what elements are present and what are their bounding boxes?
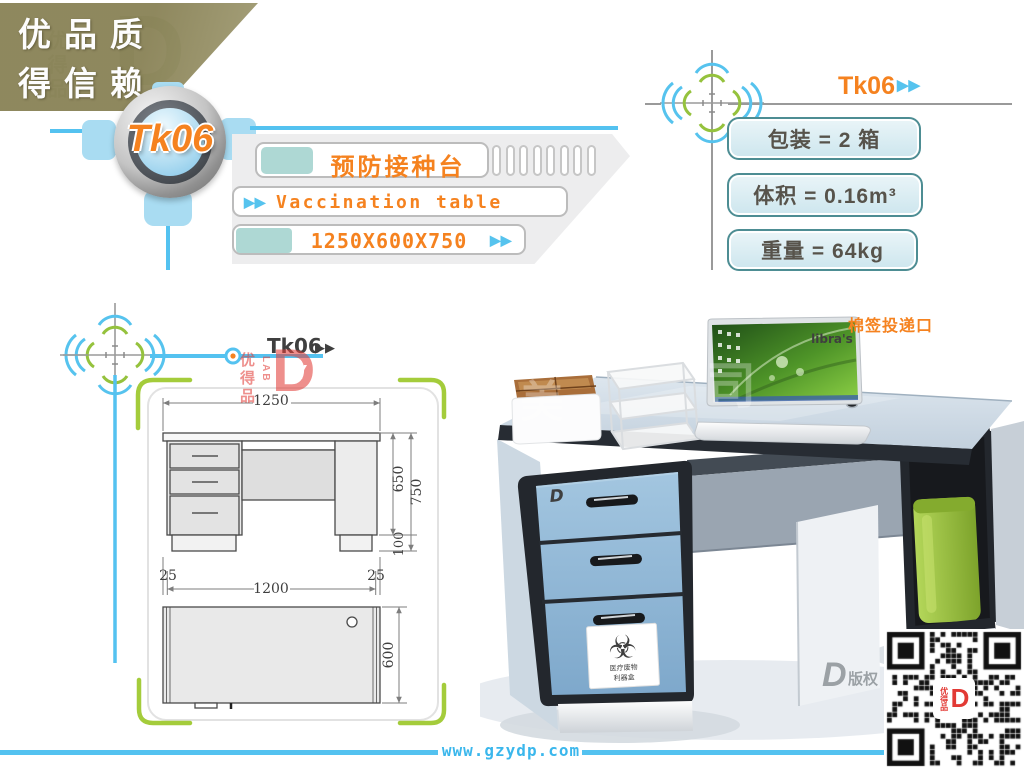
copyright-d-icon: D: [822, 656, 847, 695]
drawer-brand-logo: D: [549, 486, 564, 507]
dim-height-upper: 650: [391, 466, 407, 493]
product-name-cn: 预防接种台: [315, 147, 481, 182]
spec-volume: 体积 = 0.16m³: [727, 173, 923, 217]
photo-watermark-char: 司: [706, 346, 756, 418]
teal-block: [236, 228, 292, 253]
slot-bar: [587, 145, 596, 176]
slogan-line1: 优品质: [18, 8, 156, 56]
grommet-hole: [347, 617, 357, 627]
copyright-watermark: D 版权: [822, 656, 892, 716]
spec-weight: 重量 = 64kg: [727, 229, 918, 271]
slot-bar: [560, 145, 569, 176]
dim-right-margin: 25: [367, 568, 385, 584]
swab-port-callout: 棉签投递口: [848, 312, 933, 336]
svg-text:利器盒: 利器盒: [613, 672, 634, 682]
slot-bar: [546, 145, 555, 176]
product-size: 1250X600X750: [294, 229, 484, 253]
qr-code: 优得品 D: [884, 629, 1024, 768]
website-url: www.gzydp.com: [438, 741, 584, 760]
biohazard-sticker: ☣ 医疗废物 利器盒: [586, 623, 659, 689]
dim-left-margin: 25: [159, 568, 177, 584]
slot-bar: [492, 145, 501, 176]
dim-depth: 600: [381, 642, 397, 669]
top-blue-line: [250, 126, 618, 130]
slot-bar: [519, 145, 528, 176]
double-arrow-icon: ▶▶: [490, 233, 512, 247]
double-arrow-icon: ▶▶: [897, 78, 920, 93]
brand-watermark-red: 优得品 LAB D Y: [236, 348, 348, 422]
swab-bin: [913, 496, 981, 623]
photo-watermark-char: 美: [520, 366, 564, 430]
product-name-en: Vaccination table: [276, 192, 503, 213]
svg-text:医疗废物: 医疗废物: [609, 662, 637, 672]
spec-model-label: Tk06: [838, 72, 895, 101]
badge-model-label: Tk06: [90, 118, 250, 161]
slot-bar: [506, 145, 515, 176]
copyright-text: 版权: [848, 668, 878, 689]
product-name-en-banner: ▶▶ Vaccination table: [232, 186, 568, 217]
double-arrow-icon: ▶▶: [244, 195, 266, 209]
brand-watermark-sub: LAB: [260, 356, 271, 383]
teal-block: [261, 147, 313, 174]
spec-horizontal-line: [728, 103, 1012, 105]
brand-y-icon: Y: [294, 362, 307, 385]
dim-height-total: 750: [409, 479, 425, 506]
spec-packing: 包装 = 2 箱: [727, 117, 921, 160]
front-view: [163, 433, 380, 551]
plan-view: [163, 607, 380, 709]
dim-inner-width: 1200: [253, 581, 289, 597]
product-name-cn-banner: 预防接种台: [255, 142, 489, 178]
slot-bar: [533, 145, 542, 176]
biohazard-icon: ☣: [607, 627, 638, 666]
footer-line-left: [0, 750, 438, 755]
dim-foot: 100: [392, 532, 407, 557]
qr-center-logo: 优得品 D: [933, 678, 975, 719]
pedestal-plinth: [558, 701, 693, 733]
brand-watermark-text: 优得品: [236, 352, 257, 406]
laptop-screen-text: libra's: [811, 332, 853, 346]
product-size-banner: 1250X600X750 ▶▶: [232, 224, 526, 255]
document-tray: [608, 363, 698, 449]
slot-bar: [573, 145, 582, 176]
product-poster: D 优得品 优品质 得信赖 Tk06 预防接种台 ▶▶ Vaccination …: [0, 0, 1024, 768]
